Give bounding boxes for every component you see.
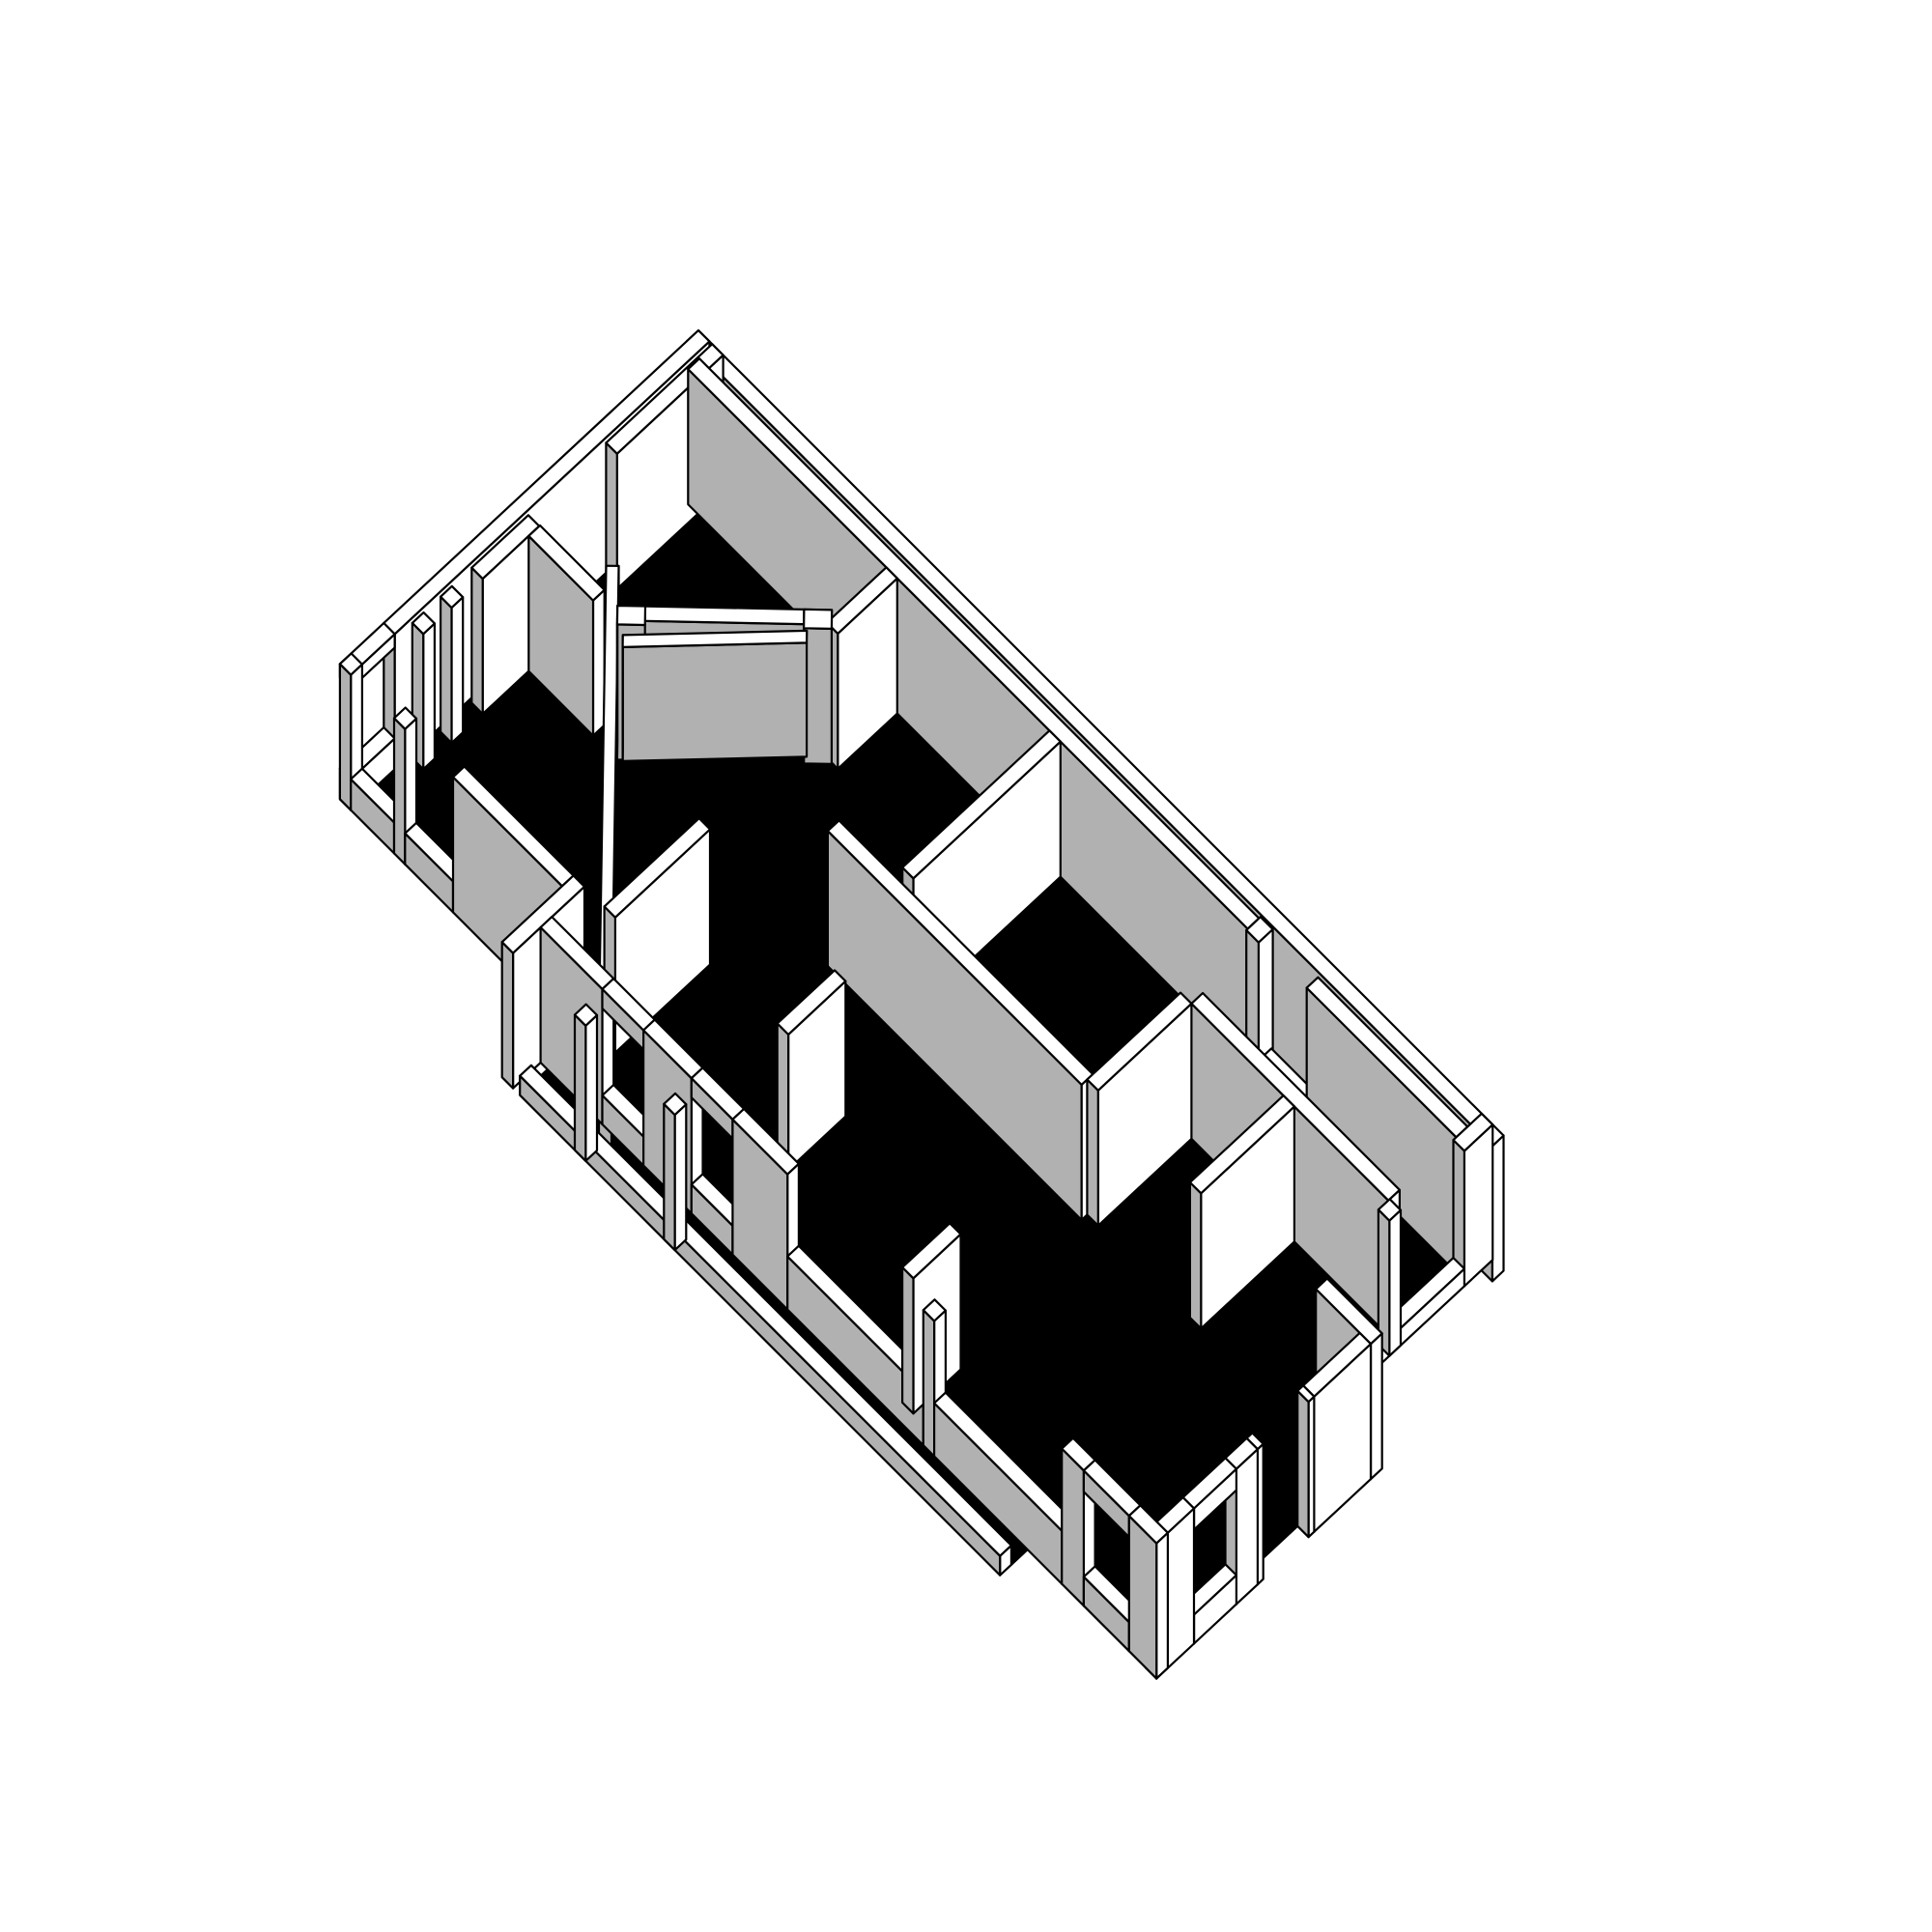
sw-wall-c-face-sw — [1062, 1449, 1084, 1606]
nw-door-return-face-se — [593, 590, 605, 736]
sw-wall-d-face-se — [1156, 1533, 1168, 1679]
se-step-jog-face-se — [1371, 1333, 1382, 1479]
room-divider-b-face-sw — [1190, 1182, 1201, 1328]
terrace-mullion-2-face-se — [675, 1104, 687, 1250]
nw-inner-leaf-b-face-sw — [471, 568, 482, 714]
sw-mullion-face-sw — [923, 1310, 934, 1456]
spine-connector-face-sw — [1087, 1080, 1097, 1226]
stub-south-b-face-sw — [902, 1267, 913, 1413]
ne-outer-wall-face-se — [1492, 1136, 1504, 1282]
sw-step-jog-face-sw — [502, 942, 513, 1088]
drawing-canvas — [0, 0, 1932, 1932]
se-window-mullion-face-se — [1389, 1210, 1401, 1356]
door-frame-jamb-a-top — [617, 606, 645, 625]
nw-window-post-1-face-sw — [440, 597, 451, 743]
walls-layer — [340, 330, 1504, 1679]
terrace-mullion-1-face-se — [585, 1015, 597, 1161]
se-wall-a-face-se — [1464, 1124, 1492, 1286]
w-corner-post-face-sw — [340, 664, 351, 810]
nw-window-post-1-face-se — [452, 597, 464, 743]
nw-window-post-2-face-se — [423, 623, 435, 769]
door-frame-head-top — [623, 606, 815, 624]
door-frame-jamb-b-face — [804, 628, 832, 764]
door-frame-jamb-b-top — [804, 610, 832, 629]
terrace-mullion-2-face-sw — [664, 1104, 674, 1250]
se-door-post-a-face-sw — [1297, 1391, 1308, 1537]
sw-post-a-face-sw — [394, 718, 405, 864]
se-wall-c-face-se — [1236, 1449, 1258, 1604]
axonometric-floor-plan — [0, 0, 1932, 1932]
door-leaf-panel-face — [623, 642, 808, 761]
terrace-mullion-1-face-sw — [575, 1015, 585, 1161]
